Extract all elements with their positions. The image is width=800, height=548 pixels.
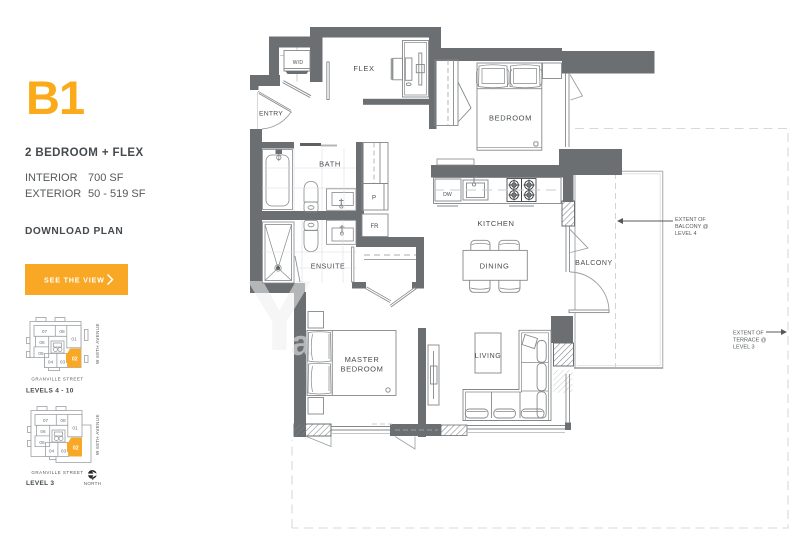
svg-text:B1: B1 [26,71,84,124]
svg-text:07: 07 [43,418,49,424]
svg-text:BEDROOM: BEDROOM [489,114,532,123]
svg-text:03: 03 [60,360,66,366]
svg-text:06: 06 [39,340,45,346]
svg-text:01: 01 [72,426,78,432]
svg-text:LEVELS 4 - 10: LEVELS 4 - 10 [26,388,74,395]
svg-text:05: 05 [38,351,44,357]
svg-text:ENSUITE: ENSUITE [311,264,346,271]
svg-text:02: 02 [72,357,78,363]
svg-text:ENTRY: ENTRY [259,111,283,118]
svg-text:GRANVILLE STREET: GRANVILLE STREET [31,470,83,475]
svg-text:07: 07 [42,329,48,335]
svg-text:BALCONY: BALCONY [575,260,613,267]
svg-text:BATH: BATH [319,160,341,169]
svg-text:FR: FR [371,224,380,230]
svg-text:LEVEL 3: LEVEL 3 [26,480,54,487]
svg-text:DOWNLOAD PLAN: DOWNLOAD PLAN [25,226,123,237]
svg-text:W/D: W/D [293,60,304,66]
svg-text:08: 08 [59,329,65,335]
svg-text:04: 04 [48,360,54,366]
svg-text:KITCHEN: KITCHEN [477,219,514,228]
svg-text:NORTH: NORTH [84,481,101,486]
svg-text:EXTENT OF: EXTENT OF [733,331,764,337]
svg-text:EXTENT OF: EXTENT OF [675,217,706,223]
svg-text:LIVING: LIVING [475,353,502,360]
svg-text:GRANVILLE STREET: GRANVILLE STREET [31,377,83,382]
svg-text:W 68TH AVENUE: W 68TH AVENUE [95,414,100,455]
svg-text:INTERIOR: INTERIOR [25,172,78,184]
svg-text:SEE THE VIEW: SEE THE VIEW [44,276,105,285]
svg-text:50 - 519 SF: 50 - 519 SF [88,188,146,200]
svg-text:P: P [372,196,376,202]
svg-text:LEVEL 4: LEVEL 4 [675,231,697,237]
svg-text:08: 08 [60,418,66,424]
svg-text:DW: DW [443,192,452,198]
svg-text:05: 05 [39,440,45,446]
svg-text:700 SF: 700 SF [88,172,124,184]
svg-text:04: 04 [49,449,55,455]
svg-text:BEDROOM: BEDROOM [341,365,384,374]
svg-text:2 BEDROOM + FLEX: 2 BEDROOM + FLEX [25,147,144,159]
svg-text:EXTERIOR: EXTERIOR [25,188,81,200]
svg-text:02: 02 [73,446,79,452]
svg-text:FLEX: FLEX [353,64,374,73]
svg-text:TERRACE @: TERRACE @ [733,338,767,344]
svg-text:DINING: DINING [480,261,510,270]
svg-text:01: 01 [71,337,77,343]
svg-text:03: 03 [61,449,67,455]
svg-text:W 68TH AVENUE: W 68TH AVENUE [95,323,100,364]
svg-text:LEVEL 3: LEVEL 3 [733,345,755,351]
svg-text:06: 06 [40,429,46,435]
svg-text:BALCONY @: BALCONY @ [675,224,709,230]
svg-text:MASTER: MASTER [345,355,380,364]
